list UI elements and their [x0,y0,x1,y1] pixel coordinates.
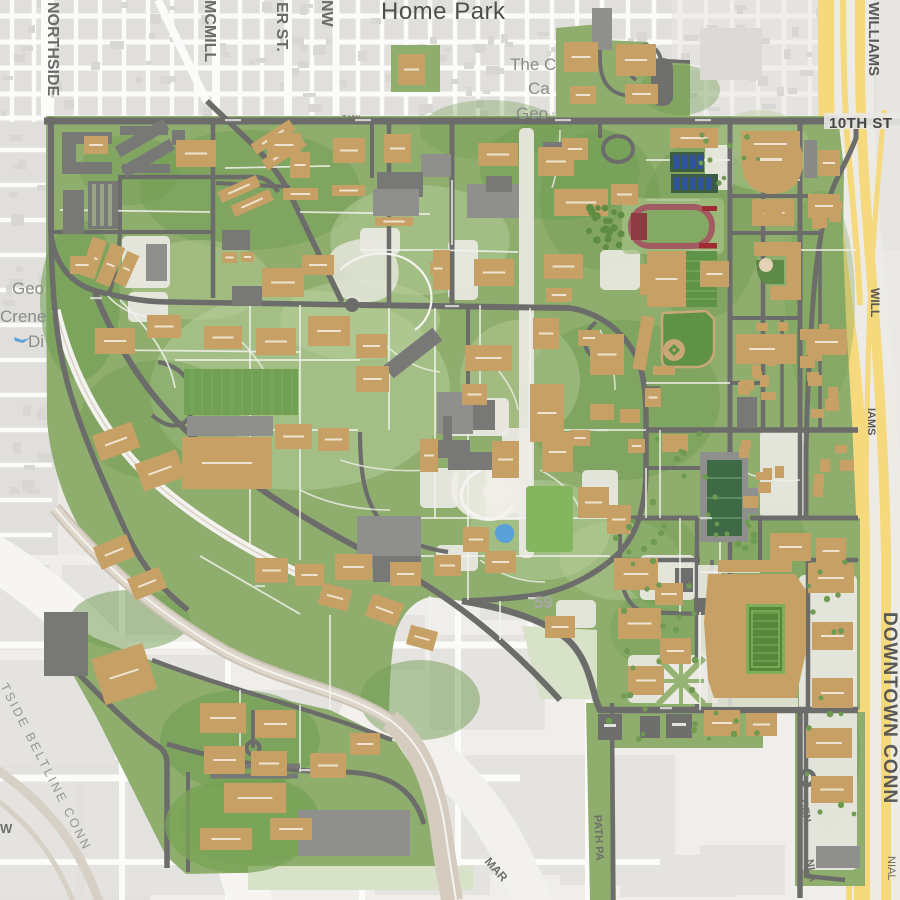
svg-text:The C: The C [510,55,556,74]
svg-text:Geo: Geo [516,104,548,123]
svg-text:NORTHSIDE: NORTHSIDE [44,2,61,97]
svg-text:Ca: Ca [528,79,550,98]
svg-text:NW: NW [318,0,335,28]
svg-text:NIAL: NIAL [885,856,897,880]
svg-text:Di: Di [28,332,44,351]
svg-text:W: W [0,821,13,836]
svg-text:10TH ST: 10TH ST [829,115,893,132]
svg-text:PATH PA: PATH PA [591,815,605,861]
svg-text:IAMS: IAMS [865,408,877,436]
svg-text:WILL: WILL [868,288,882,317]
svg-text:DOWNTOWN CONN: DOWNTOWN CONN [879,612,900,804]
svg-text:Home Park: Home Park [381,0,506,25]
svg-text:MCMILL: MCMILL [201,0,218,62]
svg-text:WILLIAMS: WILLIAMS [865,2,882,76]
svg-text:Crene: Crene [0,307,46,326]
svg-text:Geo: Geo [12,279,44,298]
svg-text:59: 59 [534,593,553,612]
svg-text:ER ST.: ER ST. [273,2,290,52]
